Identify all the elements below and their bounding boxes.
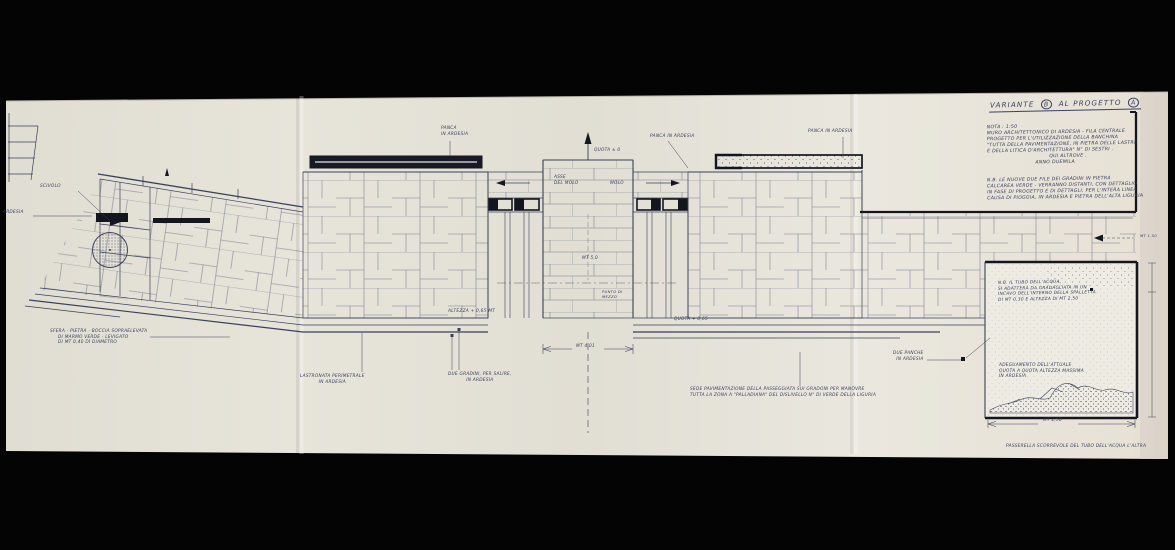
note-line: DUE PANCHE — [893, 351, 924, 357]
note-line: LASTRONATA PERIMETRALE — [300, 374, 365, 380]
label-quota-zero: QUOTA ± 0 — [594, 148, 620, 154]
left-platform — [303, 141, 488, 318]
note-line: TUTTA LA ZONA A "PALLADIANA" DEL DISLIVE… — [690, 393, 876, 399]
label-asse: ASSE DEL MOLO — [554, 175, 579, 186]
note-line: DUE GRADINI, PER SALIRE, — [448, 372, 512, 378]
title-project-letter: A — [1128, 97, 1140, 107]
label-altezza-left: ALTEZZA + 0,65 MT — [448, 309, 495, 315]
label-due-panche: DUE PANCHE IN ARDESIA — [893, 351, 924, 362]
label-mt5: MT 5,0 — [582, 256, 598, 262]
label-lastronata: LASTRONATA PERIMETRALE IN ARDESIA — [300, 374, 365, 385]
note-line: MEZZO — [602, 295, 622, 300]
scanned-architectural-drawing: VARIANTE B AL PROGETTO A NOTA : 1:50 MUR… — [0, 0, 1175, 550]
general-notes: NOTA : 1:50 MURO ARCHITETTONICO DI ARDES… — [987, 123, 1138, 168]
label-passeggiata: SEDE PAVIMENTAZIONE DELLA PASSEGGIATA SU… — [690, 387, 876, 398]
label-panca-left: PANCA IN ARDESIA — [441, 126, 468, 137]
box-adjustment-note: ADEGUAMENTO DELL'ATTUALE QUOTA A QUOTA A… — [999, 363, 1084, 380]
dimension-center: MT 4,01 — [576, 344, 595, 350]
label-panca-mid: PANCA IN ARDESIA — [650, 134, 695, 140]
nb-right-note: N.B. IL TUBO DELL'ACQUA, SI ADATTERÀ DA … — [998, 279, 1096, 303]
label-gradini: DUE GRADINI, PER SALIRE, IN ARDESIA — [448, 372, 512, 383]
note-line: IN ARDESIA — [999, 374, 1084, 380]
note-line: IN ARDESIA — [441, 132, 468, 138]
label-molo: MOLO — [610, 181, 624, 187]
title-word-al-progetto: AL PROGETTO — [1059, 98, 1122, 108]
label-scivolo: SCIVOLO — [40, 184, 61, 190]
note-line: DEL MOLO — [554, 181, 579, 187]
label-punto-mezzo: PUNTO DI MEZZO — [602, 290, 622, 300]
label-ardesia: ARDESIA — [3, 210, 24, 216]
note-line: IN ARDESIA — [893, 357, 924, 363]
nb-notes: N.B. LE NUOVE DUE FILE DEI GRADINI IN PI… — [987, 176, 1144, 203]
bottom-caption: PASSERELLA SCORREVOLE DEL TUBO DELL'ACQU… — [1006, 444, 1146, 450]
note-line: IN ARDESIA — [448, 378, 512, 384]
dimension-box: MT 2,50 — [1043, 418, 1062, 424]
title-word-variante: VARIANTE — [990, 100, 1035, 110]
note-line: DI MT 0,40 DI DIAMETRO — [50, 340, 147, 346]
note-line: SEDE PAVIMENTAZIONE DELLA PASSEGGIATA SU… — [690, 387, 876, 393]
plan-linework — [0, 0, 1175, 550]
note-line: IN ARDESIA — [300, 380, 365, 386]
label-quota-right: QUOTA + 0,65 — [674, 317, 708, 323]
label-panca-right: PANCA IN ARDESIA — [808, 129, 853, 135]
note-line: ADEGUAMENTO DELL'ATTUALE — [999, 363, 1084, 369]
dimension-walkway: MT 1,50 — [1140, 234, 1157, 239]
title-variant-letter: B — [1041, 99, 1053, 109]
label-sphere: SFERA - PIETRA - BOCCIA SOPRAELEVATA DI … — [50, 329, 147, 346]
note-line: SFERA - PIETRA - BOCCIA SOPRAELEVATA — [50, 329, 147, 335]
